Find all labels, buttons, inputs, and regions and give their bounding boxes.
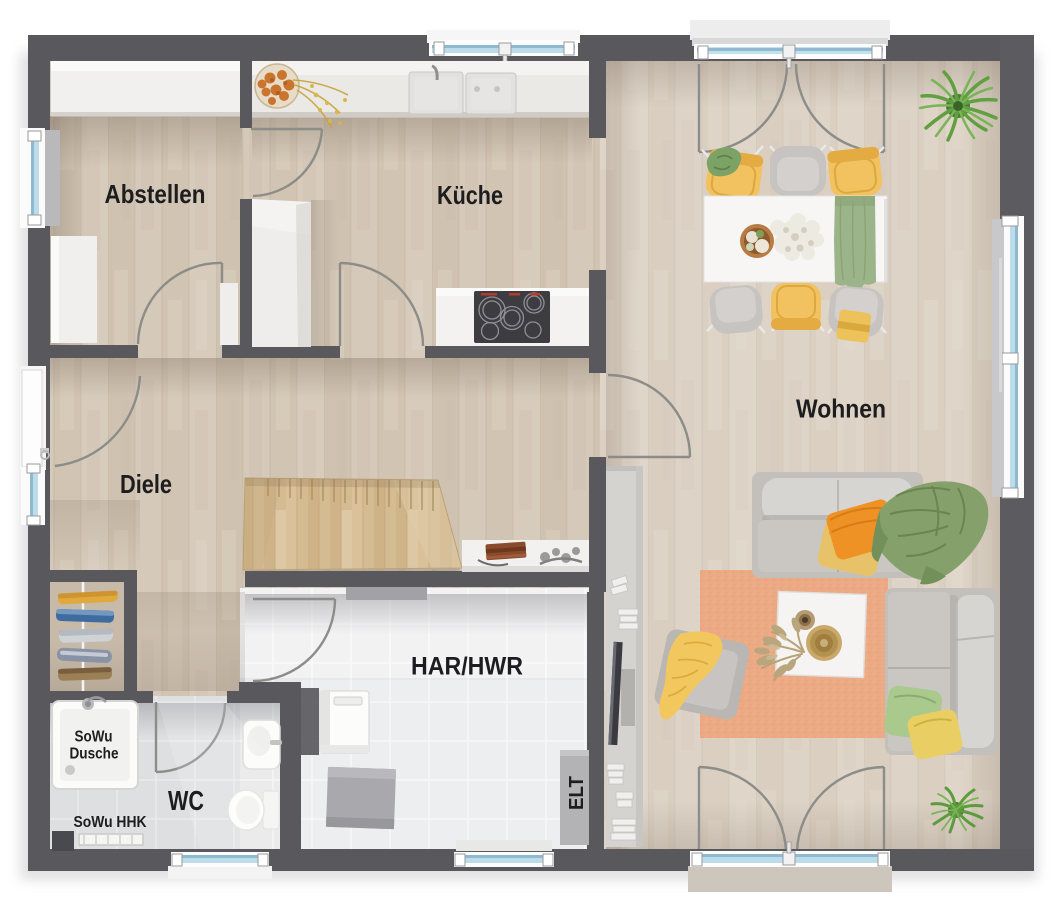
svg-text:Wohnen: Wohnen — [796, 394, 886, 424]
svg-text:ELT: ELT — [566, 776, 588, 810]
svg-text:Küche: Küche — [437, 180, 503, 210]
svg-text:SoWu: SoWu — [75, 729, 113, 746]
svg-text:SoWu HHK: SoWu HHK — [74, 814, 147, 831]
svg-text:Dusche: Dusche — [70, 746, 119, 763]
svg-text:Diele: Diele — [120, 469, 172, 499]
svg-text:HAR/HWR: HAR/HWR — [411, 653, 523, 681]
svg-text:Abstellen: Abstellen — [105, 179, 206, 209]
svg-text:WC: WC — [168, 785, 204, 816]
